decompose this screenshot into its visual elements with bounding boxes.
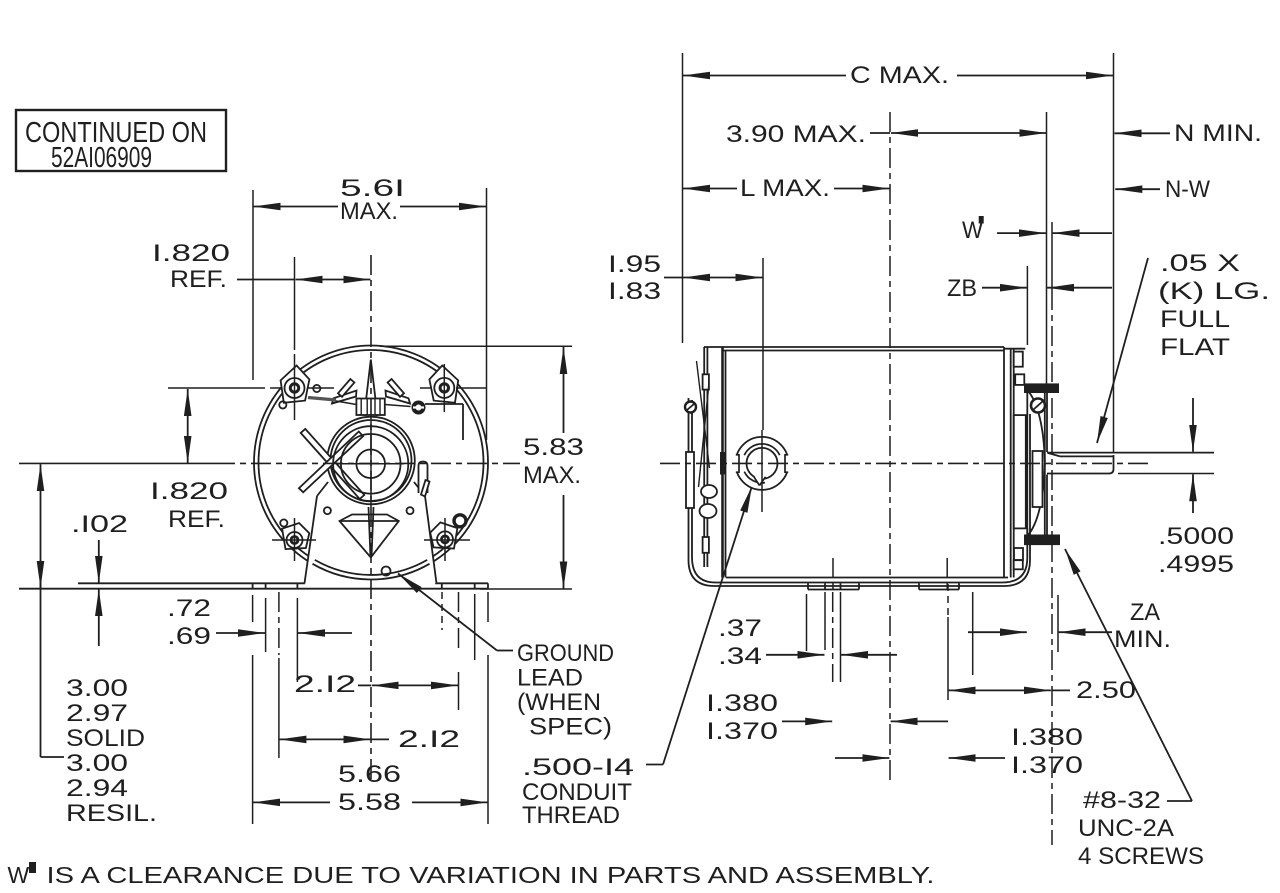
svg-text:.I02: .I02 xyxy=(71,511,128,538)
svg-text:REF.: REF. xyxy=(170,266,227,293)
svg-text:I.380: I.380 xyxy=(1011,724,1083,751)
svg-text:(K) LG.: (K) LG. xyxy=(1158,278,1270,305)
svg-text:3.00: 3.00 xyxy=(66,750,128,777)
svg-text:.500-I4: .500-I4 xyxy=(522,754,634,781)
svg-text:#8-32: #8-32 xyxy=(1083,787,1161,814)
svg-text:FULL: FULL xyxy=(1160,306,1230,333)
svg-text:REF.: REF. xyxy=(168,506,225,533)
svg-text:.5000: .5000 xyxy=(1158,523,1234,550)
svg-text:2.I2: 2.I2 xyxy=(398,726,460,753)
svg-text:I.370: I.370 xyxy=(1011,752,1083,779)
svg-text:2.94: 2.94 xyxy=(66,775,128,802)
svg-text:.72: .72 xyxy=(167,595,211,622)
svg-text:I.83: I.83 xyxy=(608,278,661,305)
svg-text:MIN.: MIN. xyxy=(1114,626,1171,653)
svg-text:2.50: 2.50 xyxy=(1076,677,1136,704)
svg-text:C MAX.: C MAX. xyxy=(850,62,949,89)
svg-text:I.95: I.95 xyxy=(608,251,661,278)
svg-text:ZB: ZB xyxy=(947,275,977,302)
svg-text:(WHEN: (WHEN xyxy=(517,689,601,716)
svg-text:I.380: I.380 xyxy=(706,690,778,717)
svg-text:5.58: 5.58 xyxy=(338,789,401,816)
svg-text:3.00: 3.00 xyxy=(66,675,128,702)
svg-text:3.90 MAX.: 3.90 MAX. xyxy=(726,121,866,148)
svg-text:2.I2: 2.I2 xyxy=(294,671,356,698)
svg-text:.69: .69 xyxy=(167,623,211,650)
svg-text:4 SCREWS: 4 SCREWS xyxy=(1078,843,1204,870)
svg-text:LEAD: LEAD xyxy=(517,665,583,692)
svg-text:5.83: 5.83 xyxy=(523,434,584,461)
svg-text:.4995: .4995 xyxy=(1158,551,1234,578)
svg-text:N MIN.: N MIN. xyxy=(1174,120,1262,147)
svg-text:MAX.: MAX. xyxy=(340,198,398,225)
svg-text:W: W xyxy=(8,862,30,888)
svg-text:MAX.: MAX. xyxy=(523,462,581,489)
svg-text:I.820: I.820 xyxy=(150,478,228,505)
svg-text:RESIL.: RESIL. xyxy=(66,800,157,827)
svg-text:I.820: I.820 xyxy=(152,240,230,267)
svg-text:IS A CLEARANCE DUE TO VARIATIO: IS A CLEARANCE DUE TO VARIATION IN PARTS… xyxy=(47,862,935,888)
svg-text:THREAD: THREAD xyxy=(522,802,620,829)
svg-text:L MAX.: L MAX. xyxy=(740,175,830,202)
svg-text:.34: .34 xyxy=(718,643,762,670)
svg-text:SPEC): SPEC) xyxy=(529,714,612,741)
svg-text:FLAT: FLAT xyxy=(1160,334,1230,361)
svg-text:5.66: 5.66 xyxy=(338,761,401,788)
svg-text:GROUND: GROUND xyxy=(517,640,614,667)
svg-text:.37: .37 xyxy=(718,615,762,642)
svg-text:I.370: I.370 xyxy=(706,718,778,745)
svg-text:UNC-2A: UNC-2A xyxy=(1078,815,1174,842)
svg-text:ZA: ZA xyxy=(1130,599,1160,626)
svg-text:.05 X: .05 X xyxy=(1160,250,1240,277)
svg-text:SOLID: SOLID xyxy=(66,725,145,752)
svg-text:N-W: N-W xyxy=(1165,176,1210,203)
svg-text:52AI06909: 52AI06909 xyxy=(51,142,152,174)
svg-text:2.97: 2.97 xyxy=(66,700,128,727)
